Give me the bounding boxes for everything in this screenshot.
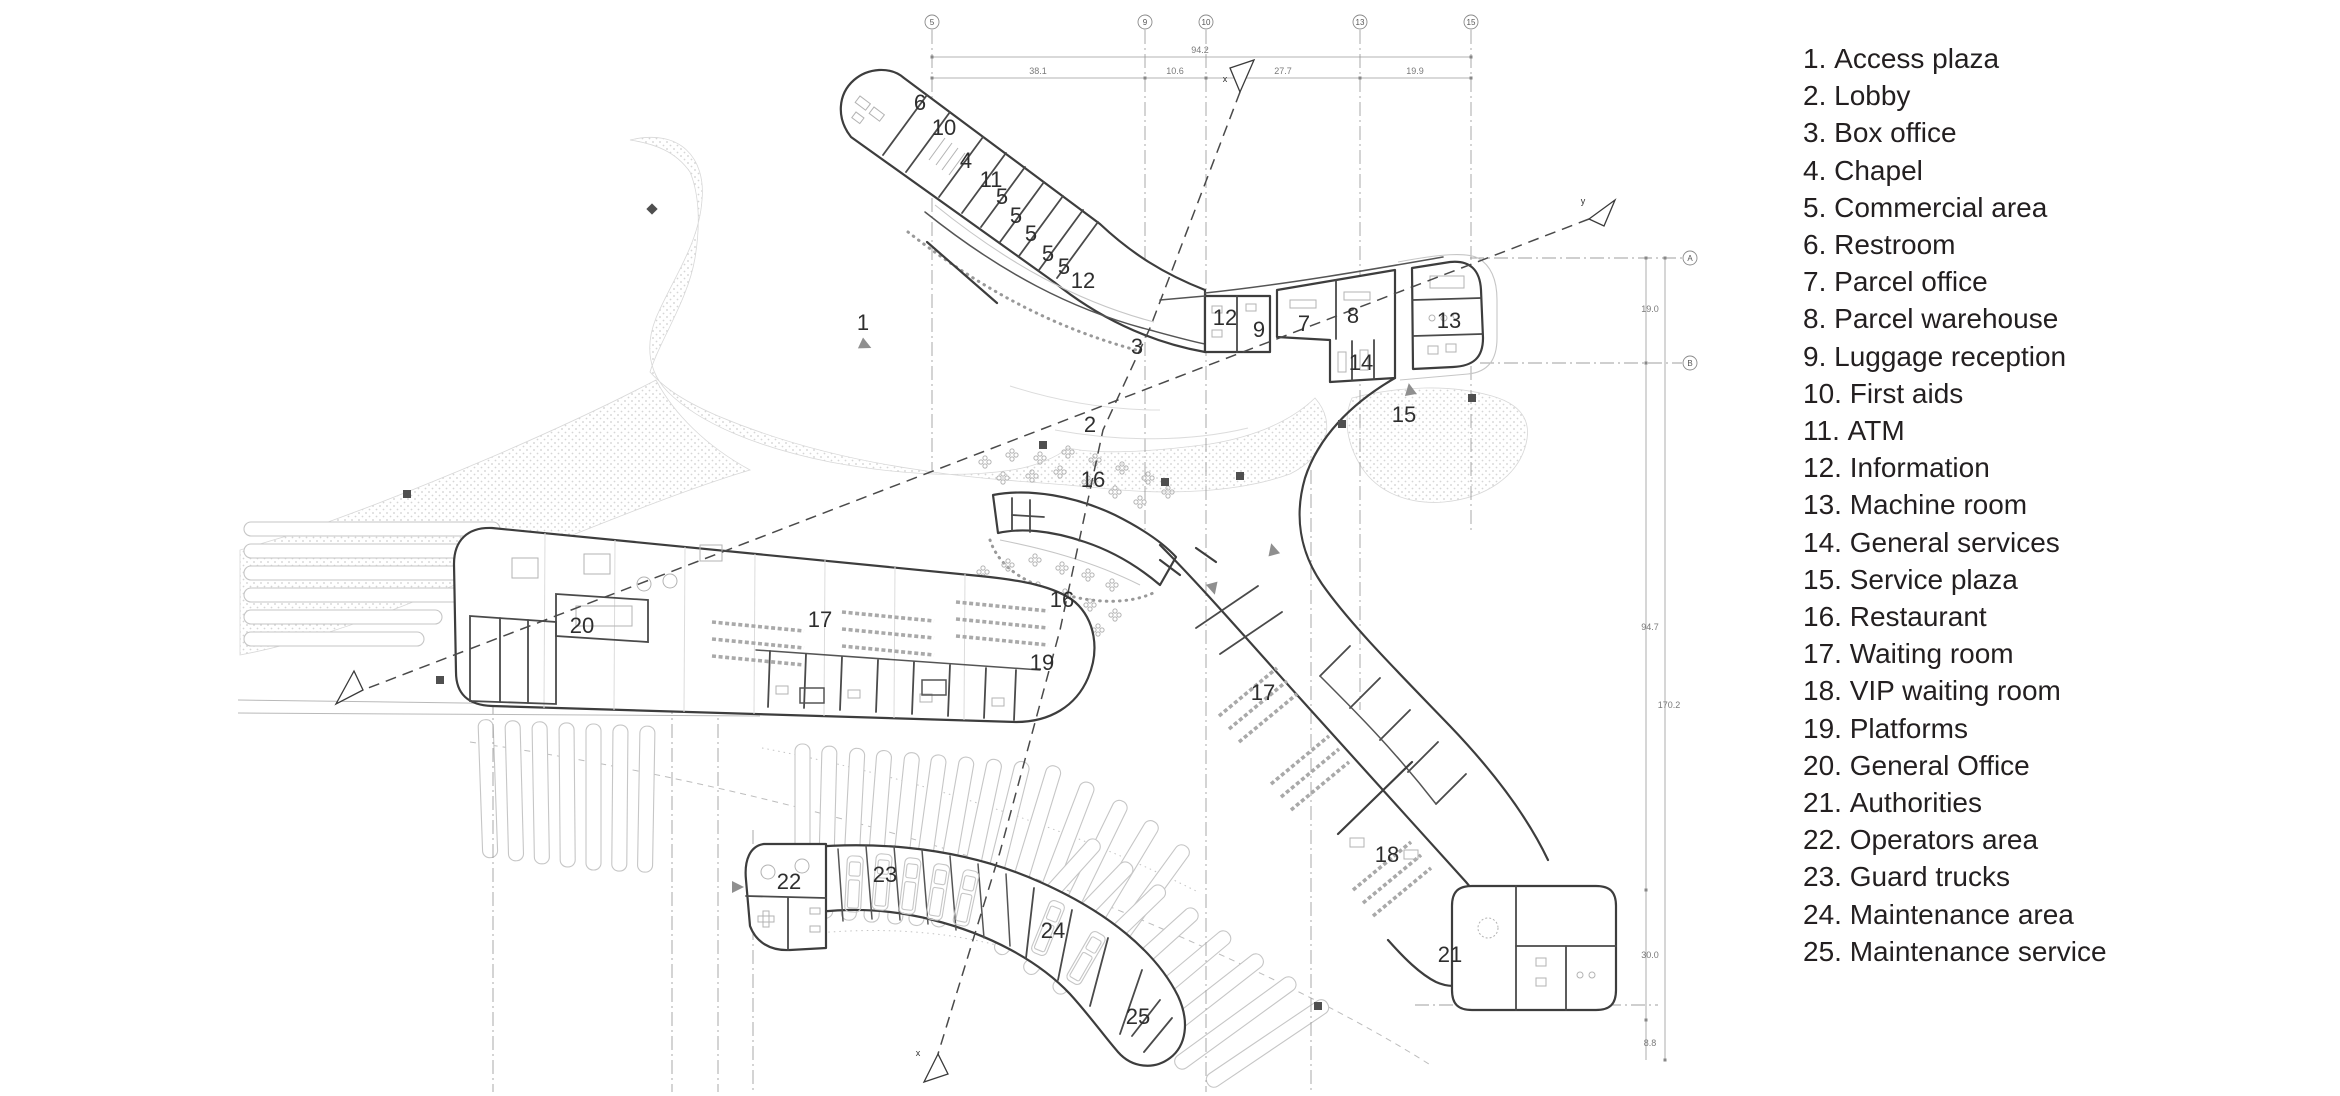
room-label-16: 16 bbox=[1050, 587, 1074, 612]
legend-item: 4. Chapel bbox=[1803, 152, 2340, 189]
section-label-x: x bbox=[1223, 74, 1228, 84]
legend-item: 5. Commercial area bbox=[1803, 189, 2340, 226]
legend-item-number: 15. bbox=[1803, 561, 1842, 598]
legend-item-label: Maintenance area bbox=[1842, 899, 2074, 930]
section-x-marker-bottom bbox=[924, 1054, 948, 1082]
legend-item: 3. Box office bbox=[1803, 114, 2340, 151]
dim-right: 30.0 bbox=[1641, 950, 1659, 960]
room-label-8: 8 bbox=[1347, 303, 1359, 328]
room-label-2: 2 bbox=[1084, 412, 1096, 437]
room-label-21: 21 bbox=[1438, 942, 1462, 967]
grid-bubble-label: B bbox=[1687, 359, 1692, 368]
legend-item-label: Machine room bbox=[1842, 489, 2027, 520]
room-label-9: 9 bbox=[1253, 317, 1265, 342]
legend-item: 15. Service plaza bbox=[1803, 561, 2340, 598]
room-label-19: 19 bbox=[1030, 650, 1054, 675]
legend-item-number: 6. bbox=[1803, 226, 1826, 263]
legend-item-label: Authorities bbox=[1842, 787, 1982, 818]
legend-item: 21. Authorities bbox=[1803, 784, 2340, 821]
legend-item-number: 2. bbox=[1803, 77, 1826, 114]
legend-item-label: Restroom bbox=[1826, 229, 1955, 260]
legend-item-label: Restaurant bbox=[1842, 601, 1987, 632]
legend-item-label: Access plaza bbox=[1826, 43, 1999, 74]
legend-item-number: 17. bbox=[1803, 635, 1842, 672]
dim-overall: 94.2 bbox=[1191, 45, 1209, 55]
legend-item: 1. Access plaza bbox=[1803, 40, 2340, 77]
grid-bubble-label: 5 bbox=[930, 18, 935, 27]
legend-item-label: Service plaza bbox=[1842, 564, 2018, 595]
legend-item-label: Maintenance service bbox=[1842, 936, 2107, 967]
dim-right: 19.0 bbox=[1641, 304, 1659, 314]
legend-item-label: Information bbox=[1842, 452, 1990, 483]
room-label-20: 20 bbox=[570, 613, 594, 638]
section-x-marker-top bbox=[1230, 60, 1254, 92]
legend-item-number: 9. bbox=[1803, 338, 1826, 375]
legend-item-number: 22. bbox=[1803, 821, 1842, 858]
room-label-25: 25 bbox=[1126, 1004, 1150, 1029]
legend-item-number: 5. bbox=[1803, 189, 1826, 226]
room-label-1: 1 bbox=[857, 310, 869, 335]
legend-item-label: Lobby bbox=[1826, 80, 1910, 111]
legend-item-label: Operators area bbox=[1842, 824, 2038, 855]
legend-item: 17. Waiting room bbox=[1803, 635, 2340, 672]
grid-bubble-label: 15 bbox=[1467, 18, 1476, 27]
legend-item: 20. General Office bbox=[1803, 747, 2340, 784]
room-label-17: 17 bbox=[1251, 680, 1275, 705]
legend-item-number: 23. bbox=[1803, 858, 1842, 895]
legend-item-number: 13. bbox=[1803, 486, 1842, 523]
room-label-12: 12 bbox=[1213, 305, 1237, 330]
section-y-marker-left bbox=[336, 671, 363, 704]
grid-bubble-label: 13 bbox=[1356, 18, 1365, 27]
legend-item: 23. Guard trucks bbox=[1803, 858, 2340, 895]
legend-item: 14. General services bbox=[1803, 524, 2340, 561]
legend-item: 25. Maintenance service bbox=[1803, 933, 2340, 970]
legend-item-label: General Office bbox=[1842, 750, 2030, 781]
room-legend: 1. Access plaza2. Lobby3. Box office4. C… bbox=[1803, 40, 2340, 970]
legend-item: 6. Restroom bbox=[1803, 226, 2340, 263]
room-label-7: 7 bbox=[1298, 311, 1310, 336]
dim-right: 8.8 bbox=[1644, 1038, 1657, 1048]
screenshot-root: 1234555556789101112121314151616171718192… bbox=[0, 0, 2340, 1096]
section-y-marker-right bbox=[1589, 200, 1615, 226]
legend-item-label: VIP waiting room bbox=[1842, 675, 2061, 706]
legend-item-label: Platforms bbox=[1842, 713, 1968, 744]
room-label-13: 13 bbox=[1437, 308, 1461, 333]
legend-item-number: 3. bbox=[1803, 114, 1826, 151]
room-label-5: 5 bbox=[1025, 221, 1037, 246]
room-label-5: 5 bbox=[1042, 241, 1054, 266]
legend-item-label: ATM bbox=[1840, 415, 1905, 446]
legend-item-label: Luggage reception bbox=[1826, 341, 2066, 372]
dim-segment: 38.1 bbox=[1029, 66, 1047, 76]
legend-item: 11. ATM bbox=[1803, 412, 2340, 449]
legend-item-number: 25. bbox=[1803, 933, 1842, 970]
legend-item: 13. Machine room bbox=[1803, 486, 2340, 523]
legend-item: 7. Parcel office bbox=[1803, 263, 2340, 300]
legend-item: 19. Platforms bbox=[1803, 710, 2340, 747]
legend-item-label: Box office bbox=[1826, 117, 1956, 148]
room-label-18: 18 bbox=[1375, 842, 1399, 867]
legend-item: 9. Luggage reception bbox=[1803, 338, 2340, 375]
legend-item-number: 8. bbox=[1803, 300, 1826, 337]
legend-item: 24. Maintenance area bbox=[1803, 896, 2340, 933]
legend-item-number: 1. bbox=[1803, 40, 1826, 77]
room-label-3: 3 bbox=[1131, 334, 1143, 359]
dim-right: 170.2 bbox=[1658, 700, 1681, 710]
seat-rows-right bbox=[1219, 668, 1349, 810]
legend-item-number: 10. bbox=[1803, 375, 1842, 412]
upper-wing-commercial bbox=[841, 70, 1205, 352]
legend-item: 22. Operators area bbox=[1803, 821, 2340, 858]
room-label-23: 23 bbox=[873, 862, 897, 887]
room-label-17: 17 bbox=[808, 607, 832, 632]
legend-item: 2. Lobby bbox=[1803, 77, 2340, 114]
room-label-4: 4 bbox=[960, 148, 972, 173]
room-label-5: 5 bbox=[1058, 254, 1070, 279]
legend-item: 12. Information bbox=[1803, 449, 2340, 486]
right-wing-services bbox=[1160, 255, 1548, 860]
grid-bubble-label: A bbox=[1687, 254, 1693, 263]
legend-item-label: General services bbox=[1842, 527, 2060, 558]
legend-item-number: 16. bbox=[1803, 598, 1842, 635]
room-label-24: 24 bbox=[1041, 918, 1065, 943]
section-label-y: y bbox=[1581, 196, 1586, 206]
room-label-10: 10 bbox=[932, 115, 956, 140]
dim-right: 94.7 bbox=[1641, 622, 1659, 632]
legend-item-label: Waiting room bbox=[1842, 638, 2014, 669]
room-label-16: 16 bbox=[1081, 467, 1105, 492]
room-label-14: 14 bbox=[1349, 350, 1373, 375]
legend-item: 8. Parcel warehouse bbox=[1803, 300, 2340, 337]
dim-segment: 10.6 bbox=[1166, 66, 1184, 76]
room-label-6: 6 bbox=[914, 90, 926, 115]
room-label-5: 5 bbox=[1010, 203, 1022, 228]
legend-item-number: 4. bbox=[1803, 152, 1826, 189]
legend-item-label: Chapel bbox=[1826, 155, 1923, 186]
room-label-22: 22 bbox=[777, 869, 801, 894]
legend-item-number: 18. bbox=[1803, 672, 1842, 709]
room-label-15: 15 bbox=[1392, 402, 1416, 427]
section-label-x: x bbox=[916, 1048, 921, 1058]
legend-item-label: First aids bbox=[1842, 378, 1963, 409]
legend-item: 10. First aids bbox=[1803, 375, 2340, 412]
grid-bubble-label: 10 bbox=[1202, 18, 1211, 27]
legend-item-number: 19. bbox=[1803, 710, 1842, 747]
legend-item-number: 11. bbox=[1803, 412, 1840, 449]
dim-segment: 19.9 bbox=[1406, 66, 1424, 76]
dim-segment: 27.7 bbox=[1274, 66, 1292, 76]
legend-item-label: Commercial area bbox=[1826, 192, 2047, 223]
legend-item-label: Guard trucks bbox=[1842, 861, 2010, 892]
legend-item-label: Parcel office bbox=[1826, 266, 1987, 297]
legend-item-label: Parcel warehouse bbox=[1826, 303, 2058, 334]
legend-item-number: 21. bbox=[1803, 784, 1842, 821]
room-label-12: 12 bbox=[1071, 268, 1095, 293]
legend-item-number: 7. bbox=[1803, 263, 1826, 300]
legend-item-number: 14. bbox=[1803, 524, 1842, 561]
legend-item: 18. VIP waiting room bbox=[1803, 672, 2340, 709]
room-label-11: 11 bbox=[980, 167, 1003, 192]
legend-item: 16. Restaurant bbox=[1803, 598, 2340, 635]
legend-item-number: 24. bbox=[1803, 896, 1842, 933]
grid-bubble-label: 9 bbox=[1143, 18, 1148, 27]
legend-item-number: 12. bbox=[1803, 449, 1842, 486]
legend-item-number: 20. bbox=[1803, 747, 1842, 784]
